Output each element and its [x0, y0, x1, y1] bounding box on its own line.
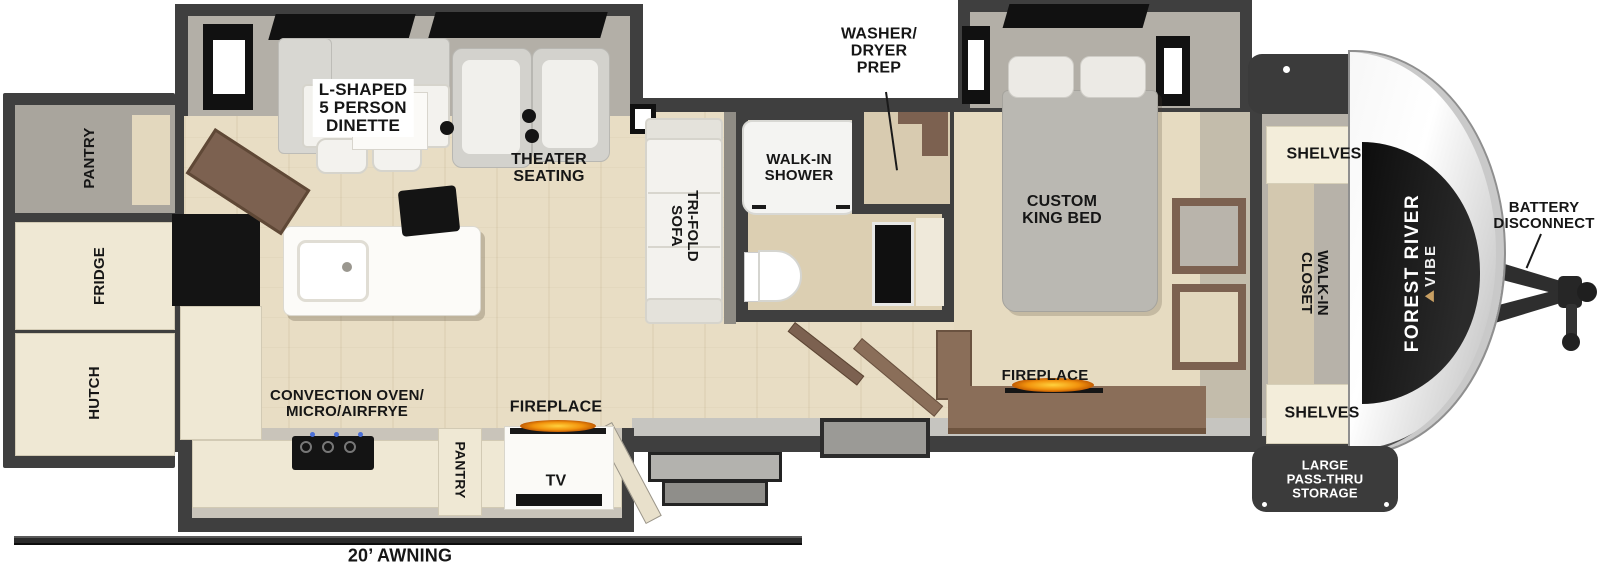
wd-closet-shelf-side: [922, 112, 948, 156]
bedroom-floor-shadow: [1200, 112, 1250, 438]
burner-1: [300, 441, 312, 453]
label-theater-seating: THEATER SEATING: [511, 152, 587, 186]
dinette-skylight-window: [268, 14, 415, 40]
label-shelves-top: SHELVES: [1287, 147, 1362, 164]
entry-step-upper: [648, 452, 782, 482]
island-stool: [398, 185, 460, 237]
label-awning: 20’ AWNING: [348, 546, 452, 565]
bedroom-skylight-window: [1003, 4, 1150, 28]
bedroom-wardrobe-upper: [1172, 198, 1246, 274]
bedroom-window-left-pane: [968, 40, 984, 90]
range-knob-1: [310, 432, 315, 437]
sofa-arm-bottom: [645, 298, 723, 324]
label-convection-oven: CONVECTION OVEN/ MICRO/AIRFRYE: [270, 388, 424, 420]
tv-screen: [516, 494, 602, 506]
label-shelves-bottom: SHELVES: [1285, 406, 1360, 423]
awning-bar: [14, 536, 802, 545]
label-bedroom-fireplace: FIREPLACE: [1002, 368, 1089, 384]
pass-thru-rivet-2: [1384, 502, 1389, 507]
label-hutch: HUTCH: [87, 366, 103, 420]
label-battery-disconnect: BATTERY DISCONNECT: [1493, 200, 1594, 232]
label-custom-king-bed: CUSTOM KING BED: [1022, 194, 1102, 228]
pantry-fridge-divider-wall: [15, 213, 175, 222]
wd-closet-wall-bottom: [852, 204, 952, 214]
bathroom-appliance: [872, 222, 914, 306]
rear-pantry-floor: [132, 115, 170, 205]
label-kitchen-pantry: PANTRY: [453, 441, 468, 498]
bathroom-door-panel: [916, 218, 944, 306]
theater-skylight-window: [428, 12, 607, 38]
shower-door-hinge-right: [836, 205, 850, 209]
label-fridge: FRIDGE: [92, 247, 108, 305]
label-tv: TV: [546, 474, 567, 491]
label-walk-in-closet: WALK-IN CLOSET: [1298, 250, 1330, 316]
bedroom-window-right-pane: [1164, 48, 1182, 94]
label-tri-fold-sofa: TRI-FOLD SOFA: [668, 190, 700, 262]
bed-pillow-left: [1008, 56, 1074, 98]
kitchen-fireplace-flame: [520, 420, 596, 432]
brand-forest-river: FOREST RIVER: [1403, 194, 1422, 352]
closet-divider-wall: [1250, 108, 1262, 438]
refrigerator-appliance: [172, 214, 260, 306]
storage-cover-rivet-1: [1283, 66, 1290, 73]
bedroom-wardrobe-lower: [1172, 284, 1246, 370]
island-sink: [297, 240, 369, 302]
bottom-wall: [632, 436, 1362, 452]
bedroom-dresser: [948, 386, 1206, 434]
label-kitchen-fireplace: FIREPLACE: [510, 400, 602, 417]
sofa-half-wall: [724, 112, 736, 324]
label-walk-in-shower: WALK-IN SHOWER: [765, 152, 834, 184]
cupholder-3: [525, 129, 539, 143]
pass-thru-rivet-1: [1262, 502, 1267, 507]
brand-vibe: VIBE: [1422, 194, 1439, 352]
cupholder-2: [522, 109, 536, 123]
label-pass-thru-storage: LARGE PASS-THRU STORAGE: [1287, 458, 1364, 499]
entry-landing-mat: [820, 418, 930, 458]
kitchen-left-counter: [180, 306, 262, 440]
dinette-side-window-pane: [213, 40, 245, 94]
shower-door-hinge-left: [752, 205, 766, 209]
vibe-triangle-icon: [1425, 290, 1434, 302]
burner-3: [344, 441, 356, 453]
wd-closet-wall-left: [852, 112, 864, 214]
theater-seat-right-cushion: [542, 60, 598, 148]
sink-faucet: [342, 262, 352, 272]
label-rear-pantry: PANTRY: [82, 127, 98, 188]
bed-pillow-right: [1080, 56, 1146, 98]
label-washer-dryer-prep: WASHER/ DRYER PREP: [841, 27, 917, 78]
burner-2: [322, 441, 334, 453]
label-dinette: L-SHAPED 5 PERSON DINETTE: [313, 79, 414, 137]
range-knob-2: [334, 432, 339, 437]
entry-step-lower: [662, 480, 768, 506]
brand-logo: FOREST RIVER VIBE: [1403, 194, 1439, 352]
cupholder-1: [440, 121, 454, 135]
theater-seat-left-cushion: [462, 60, 520, 154]
range-knob-3: [358, 432, 363, 437]
rv-floorplan: FOREST RIVER VIBE PANTRY FRIDGE HUTCH L-…: [0, 0, 1600, 571]
